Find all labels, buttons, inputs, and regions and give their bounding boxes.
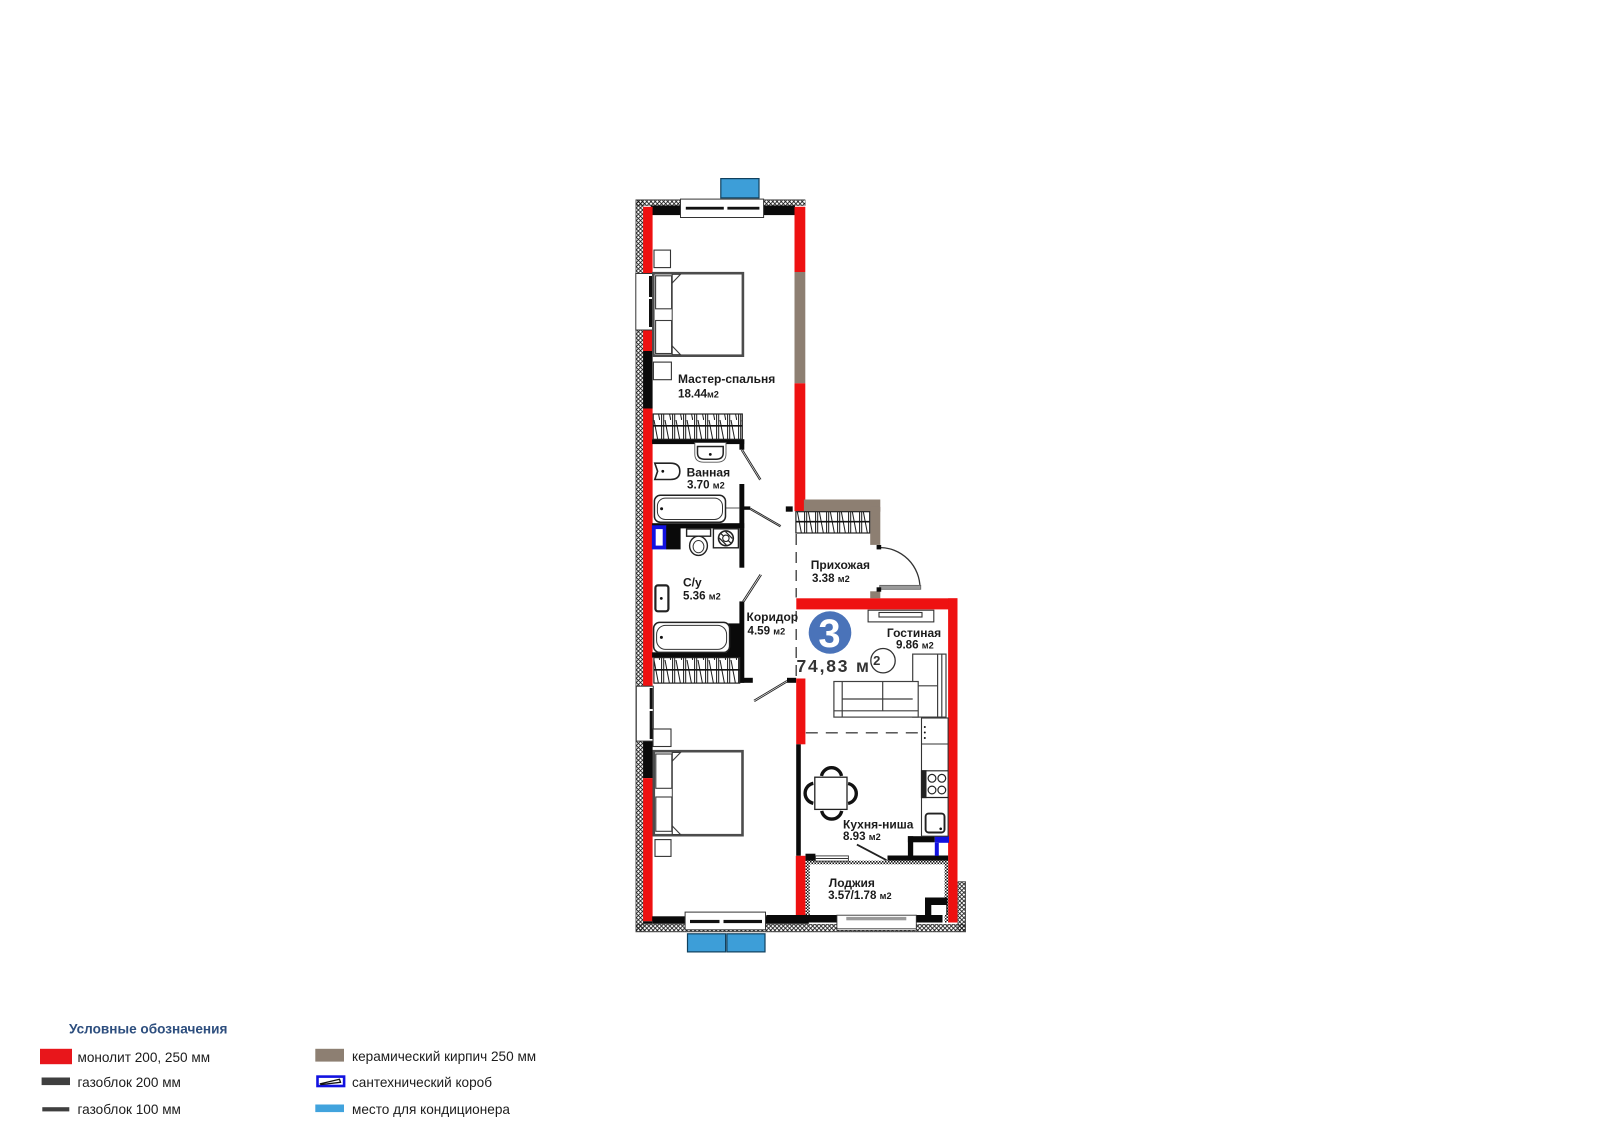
svg-text:3.38 м2: 3.38 м2 <box>812 572 850 585</box>
svg-text:2: 2 <box>873 653 880 668</box>
svg-text:8.93 м2: 8.93 м2 <box>843 830 881 843</box>
svg-text:Мастер-спальня: Мастер-спальня <box>678 372 775 386</box>
svg-text:сантехнический короб: сантехнический короб <box>352 1075 492 1090</box>
svg-text:С/у: С/у <box>683 576 702 590</box>
svg-text:Условные обозначения: Условные обозначения <box>69 1022 227 1037</box>
svg-text:18.44м2: 18.44м2 <box>678 387 719 400</box>
svg-text:3.70 м2: 3.70 м2 <box>687 478 725 491</box>
svg-text:3: 3 <box>818 612 840 656</box>
svg-text:керамический кирпич 250 мм: керамический кирпич 250 мм <box>352 1049 536 1064</box>
svg-text:Коридор: Коридор <box>747 610 799 624</box>
svg-text:газоблок 100 мм: газоблок 100 мм <box>78 1102 181 1117</box>
svg-text:Ванная: Ванная <box>687 465 731 479</box>
svg-text:Лоджия: Лоджия <box>829 876 875 890</box>
svg-text:место для кондиционера: место для кондиционера <box>352 1102 510 1117</box>
svg-text:монолит 200, 250 мм: монолит 200, 250 мм <box>78 1050 211 1065</box>
svg-text:4.59 м2: 4.59 м2 <box>748 625 786 638</box>
svg-text:5.36 м2: 5.36 м2 <box>683 590 721 603</box>
svg-text:74,83 м: 74,83 м <box>797 656 871 676</box>
svg-text:9.86 м2: 9.86 м2 <box>896 639 934 652</box>
svg-text:газоблок 200 мм: газоблок 200 мм <box>78 1075 181 1090</box>
svg-text:3.57/1.78 м2: 3.57/1.78 м2 <box>828 889 891 902</box>
svg-text:Прихожая: Прихожая <box>811 558 870 572</box>
